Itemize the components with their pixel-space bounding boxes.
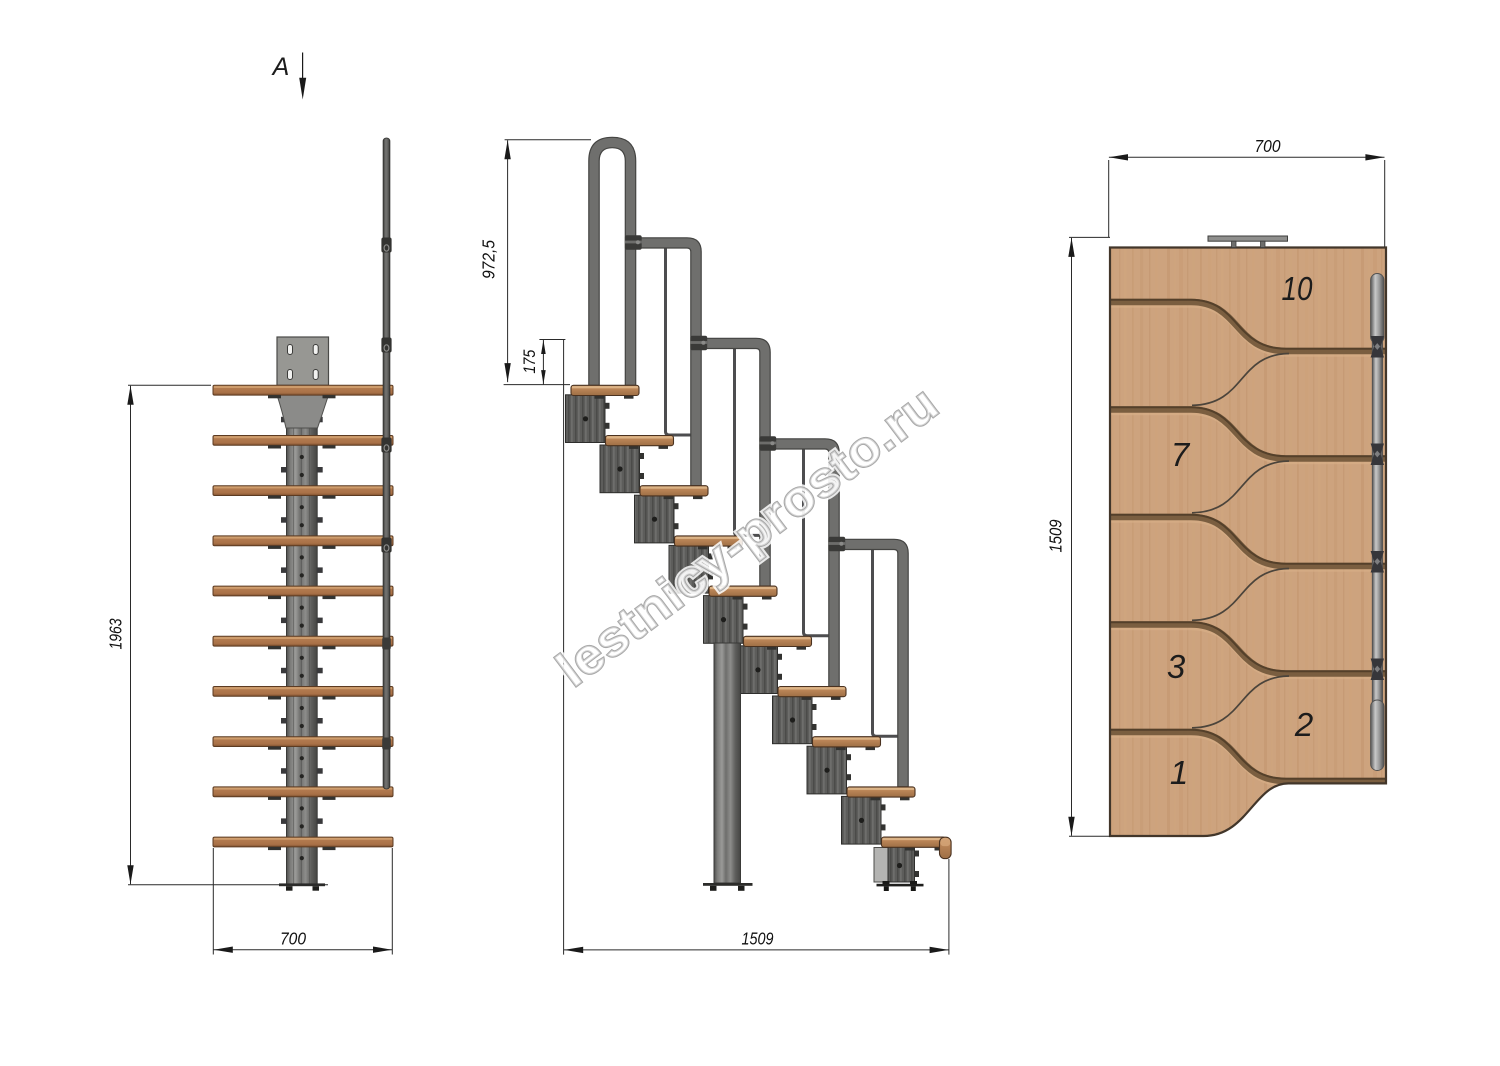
svg-text:3: 3 [1167,648,1186,685]
svg-text:A: A [271,53,290,81]
svg-text:972,5: 972,5 [479,240,499,279]
svg-text:700: 700 [1255,136,1281,156]
svg-text:175: 175 [520,349,539,373]
svg-text:1509: 1509 [742,929,774,949]
svg-text:7: 7 [1171,436,1191,473]
svg-text:700: 700 [280,929,306,949]
svg-text:1963: 1963 [106,618,126,649]
svg-text:2: 2 [1294,706,1313,743]
svg-text:10: 10 [1282,270,1314,307]
svg-text:1509: 1509 [1046,519,1066,552]
svg-text:1: 1 [1170,754,1188,791]
